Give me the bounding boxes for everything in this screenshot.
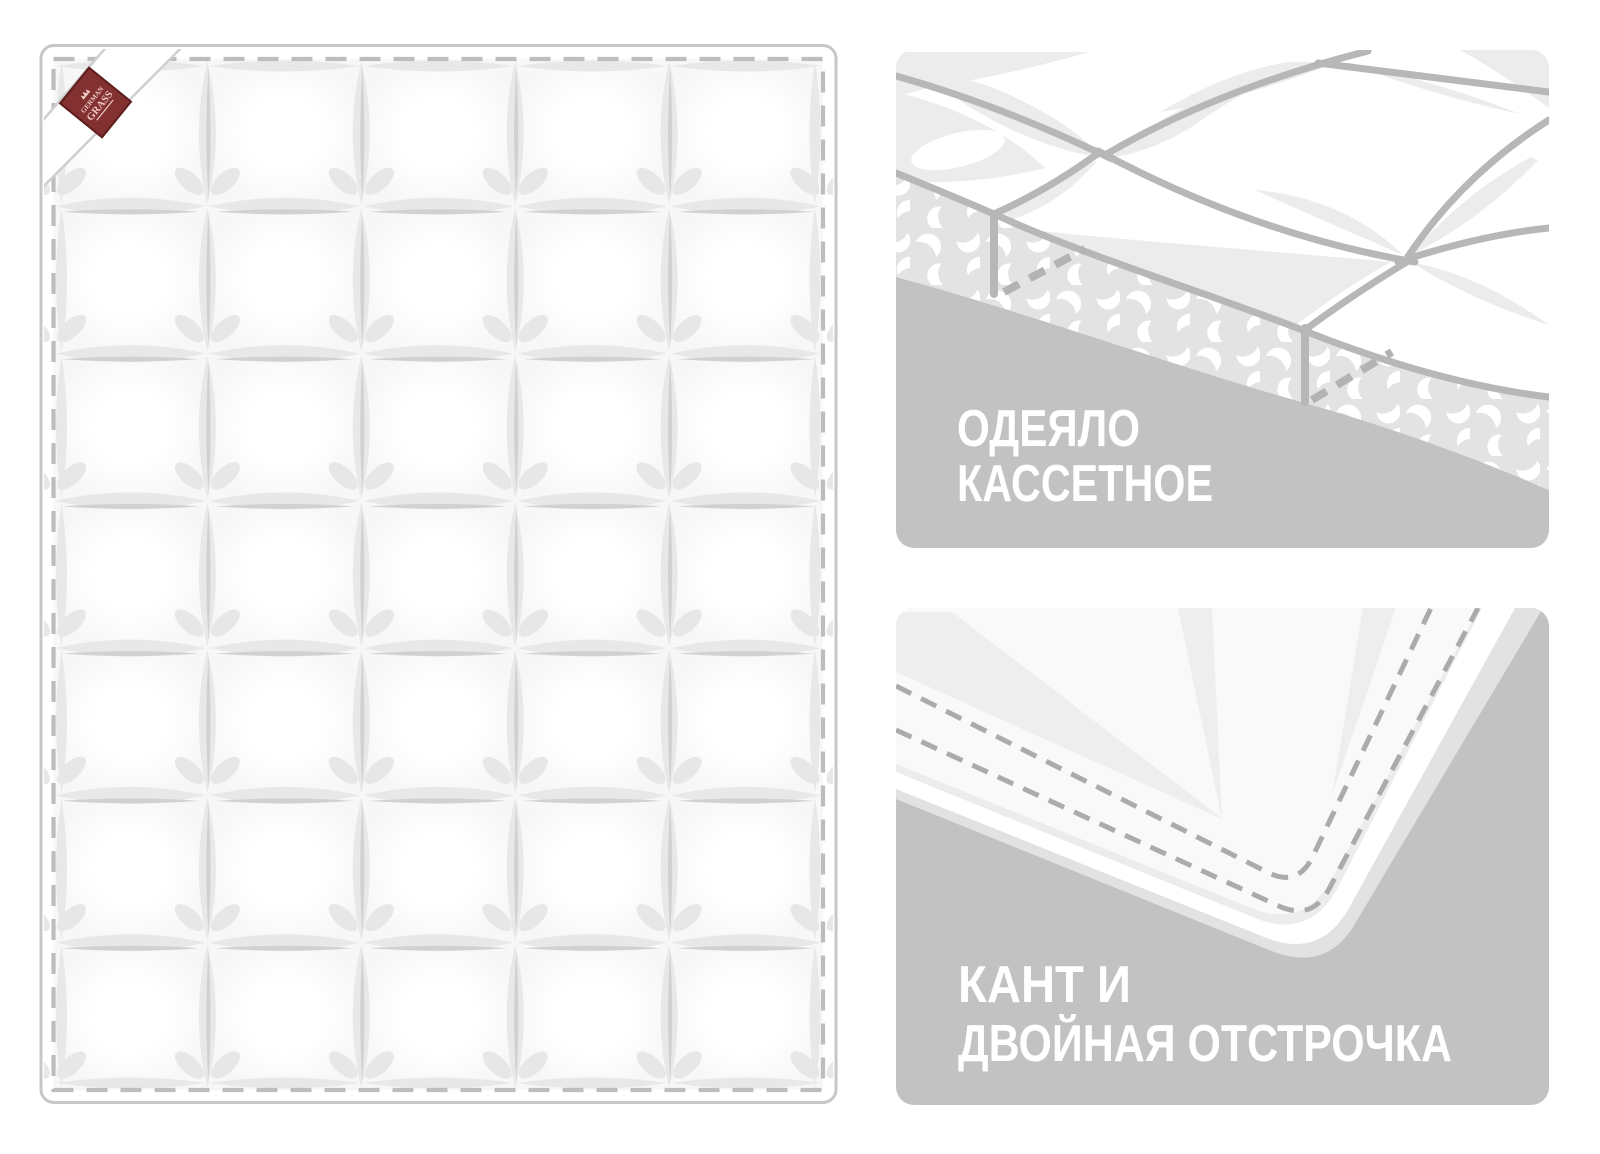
svg-text:ДВОЙНАЯ ОТСТРОЧКА: ДВОЙНАЯ ОТСТРОЧКА [958,1014,1452,1073]
svg-text:ОДЕЯЛО: ОДЕЯЛО [957,400,1140,458]
svg-text:КАССЕТНОЕ: КАССЕТНОЕ [957,455,1213,513]
svg-text:КАНТ И: КАНТ И [958,956,1131,1014]
